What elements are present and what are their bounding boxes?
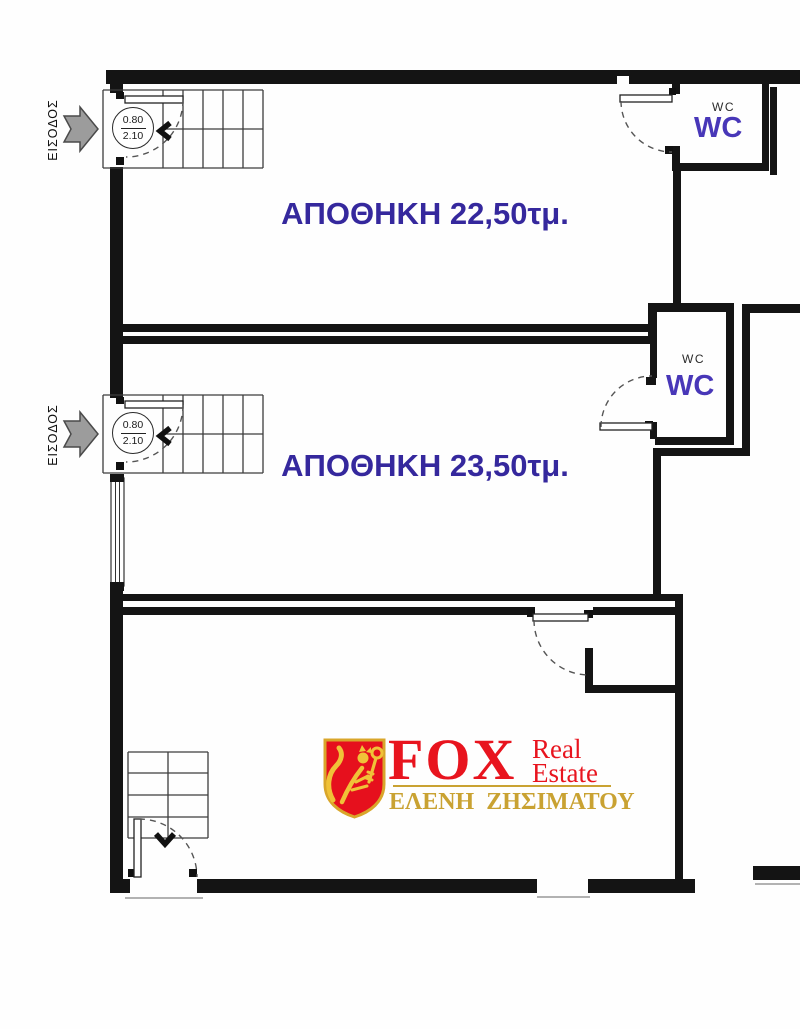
floorplan-canvas: ΕΙΣΟΔΟΣ 0.80 2.10 ΕΙΣΟΔΟΣ 0.80 2.10 ΑΠΟΘ…	[0, 0, 800, 1029]
logo-agent-name: ΕΛΕΝΗ ΖΗΣΙΜΑΤΟΥ	[389, 789, 615, 816]
logo-brand: FOX	[388, 726, 516, 793]
wc-2-small-label: WC	[682, 352, 705, 366]
room-1-label: ΑΠΟΘΗΚΗ 22,50τμ.	[255, 196, 595, 232]
entrance-1-label: ΕΙΣΟΔΟΣ	[46, 80, 62, 180]
window	[110, 474, 124, 591]
entrance-arrow-2	[64, 412, 98, 456]
door-size-circle-2: 0.80 2.10	[112, 412, 154, 454]
fraction-line	[121, 128, 146, 129]
logo-shield-icon	[325, 740, 384, 817]
door-1-width: 0.80	[123, 114, 143, 126]
wc-1-large-label: WC	[694, 112, 742, 145]
entrance-arrow-1	[64, 107, 98, 151]
door-2-height: 2.10	[123, 435, 143, 447]
floorplan-drawing	[0, 0, 800, 1029]
door-chevrons	[156, 123, 174, 844]
door-size-circle-1: 0.80 2.10	[112, 107, 154, 149]
entrance-2-label: ΕΙΣΟΔΟΣ	[46, 385, 62, 485]
logo-divider-line	[393, 785, 611, 787]
fraction-line	[121, 433, 146, 434]
wc-2-large-label: WC	[666, 370, 714, 403]
door-2-width: 0.80	[123, 419, 143, 431]
door-1-height: 2.10	[123, 130, 143, 142]
room-2-label: ΑΠΟΘΗΚΗ 23,50τμ.	[255, 448, 595, 484]
